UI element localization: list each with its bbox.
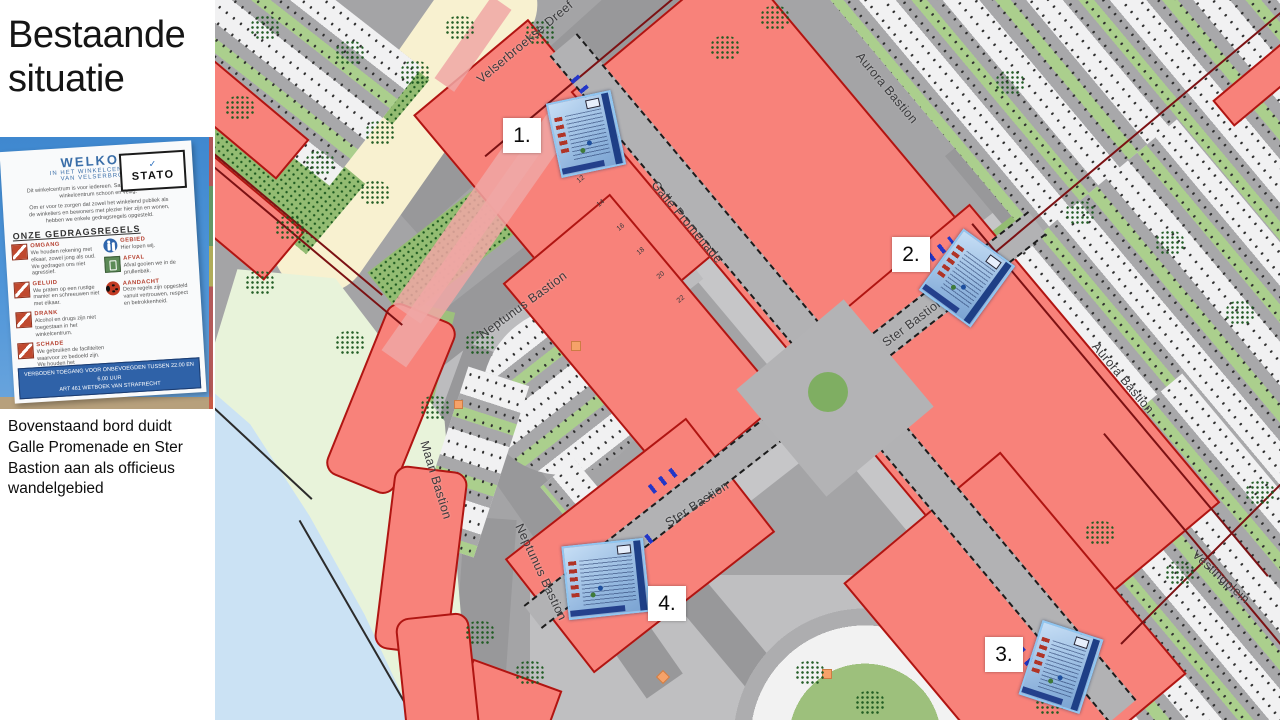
- mini-sign-textlines: [565, 108, 611, 162]
- trash-bin-icon: [104, 256, 121, 273]
- tree-cluster: [1085, 520, 1115, 546]
- tree-cluster: [855, 690, 885, 716]
- tree-cluster: [1225, 300, 1255, 326]
- mini-sign-logo: [585, 98, 601, 110]
- tree-cluster: [465, 620, 495, 646]
- sign-footer-line2: ART 461 WETBOEK VAN STRAFRECHT: [59, 380, 161, 392]
- sign-rules-left-column: OMGANGWe houden rekening met elkaar, zow…: [11, 240, 107, 381]
- map-marker-4: 4.: [648, 586, 686, 621]
- tree-cluster: [1165, 560, 1195, 586]
- stato-logo-text: STATO: [131, 168, 175, 183]
- sign-rule-text: DRANKAlcohol en drugs zijn niet toegesta…: [34, 307, 105, 338]
- sign-rule-text: AANDACHTDeze regels zijn opgesteld vanui…: [123, 276, 195, 307]
- sign-rule-text: GELUIDWe praten op een rustige manier en…: [32, 277, 103, 308]
- sign-rule-drank: DRANKAlcohol en drugs zijn niet toegesta…: [15, 307, 104, 339]
- tree-cluster: [1245, 480, 1275, 506]
- left-panel: Bestaande situatie ✓ STATO WELKOM IN HET…: [0, 0, 215, 720]
- sign-rule-aandacht: AANDACHTDeze regels zijn opgesteld vanui…: [106, 276, 195, 308]
- tree-cluster: [360, 180, 390, 206]
- tree-cluster: [515, 660, 545, 686]
- tree-cluster: [335, 330, 365, 356]
- sign-rule-afval: AFVALAfval gooien we in de prullenbak.: [104, 252, 193, 277]
- tree-cluster: [335, 40, 365, 66]
- tree-cluster: [420, 395, 450, 421]
- sign-rule-text: OMGANGWe houden rekening met elkaar, zow…: [30, 240, 101, 277]
- sign-rule-geluid: GELUIDWe praten op een rustige manier en…: [13, 277, 102, 309]
- tree-cluster: [795, 660, 825, 686]
- tree-cluster: [400, 60, 430, 86]
- tree-cluster: [1065, 200, 1095, 226]
- map-marker-2: 2.: [892, 237, 930, 272]
- sign-rule-gebied: GEBIEDHier lopen wij.: [103, 234, 192, 253]
- stato-logo-icon: ✓: [148, 160, 156, 169]
- sign-rule-text: GEBIEDHier lopen wij.: [120, 236, 155, 252]
- sign-rule-omgang: OMGANGWe houden rekening met elkaar, zow…: [11, 240, 101, 279]
- orange-square: [454, 400, 463, 409]
- photo-edge: [209, 137, 213, 409]
- mini-sign-logo: [617, 544, 632, 554]
- tree-cluster: [995, 70, 1025, 96]
- no-shouting-icon: [13, 281, 30, 298]
- tree-cluster: [1155, 230, 1185, 256]
- map-marker-1: 1.: [503, 118, 541, 153]
- tree-cluster: [245, 270, 275, 296]
- orange-square: [571, 341, 581, 351]
- tree-cluster: [250, 15, 280, 41]
- sign-photo: ✓ STATO WELKOM IN HET WINKELCENTRUM VAN …: [0, 137, 213, 409]
- sign-rule-text: AFVALAfval gooien we in de prullenbak.: [123, 252, 193, 276]
- tree-cluster: [445, 15, 475, 41]
- stato-logo: ✓ STATO: [119, 150, 187, 192]
- page-title: Bestaande situatie: [8, 14, 208, 101]
- tree-cluster: [365, 120, 395, 146]
- tree-cluster: [225, 95, 255, 121]
- map-welcome-sign-4: [561, 538, 650, 620]
- mini-sign-icons: [568, 561, 580, 598]
- tree-cluster: [710, 35, 740, 61]
- welcome-sign-board: ✓ STATO WELKOM IN HET WINKELCENTRUM VAN …: [0, 140, 207, 403]
- no-vandalism-icon: [17, 343, 34, 360]
- sign-rules-right-column: GEBIEDHier lopen wij.AFVALAfval gooien w…: [103, 234, 199, 375]
- tree-cluster: [275, 215, 305, 241]
- ladybug-icon: [106, 281, 121, 296]
- plaza-green-circle: [808, 372, 848, 412]
- tree-cluster: [305, 150, 335, 176]
- slide: Bestaande situatie ✓ STATO WELKOM IN HET…: [0, 0, 1280, 720]
- no-alcohol-icon: [15, 312, 32, 329]
- no-aggression-icon: [11, 244, 28, 261]
- mini-sign-textlines: [579, 555, 636, 605]
- photo-caption: Bovenstaand bord duidt Galle Promenade e…: [8, 417, 208, 500]
- tree-cluster: [760, 5, 790, 31]
- pedestrian-zone-icon: [103, 238, 118, 253]
- city-map: Velserbroekse DreefAurora BastionGalle P…: [215, 0, 1280, 720]
- map-marker-3: 3.: [985, 637, 1023, 672]
